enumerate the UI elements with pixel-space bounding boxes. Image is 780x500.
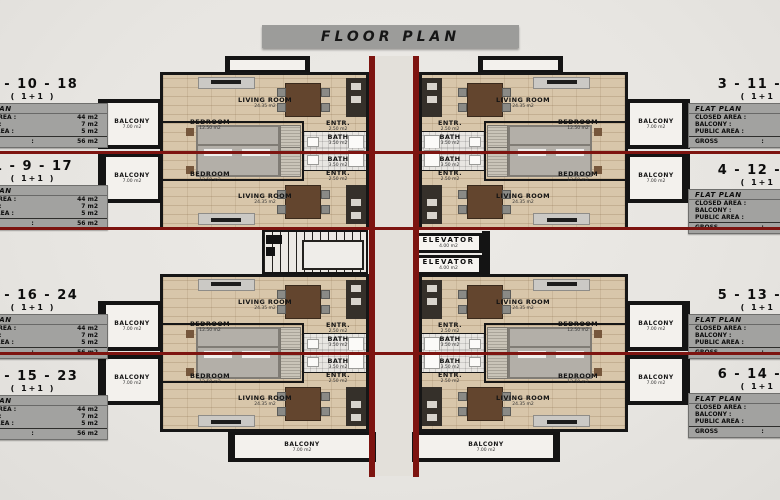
balcony-box: BALCONY 7.00 m2 bbox=[626, 301, 690, 351]
balcony-box: BALCONY 7.00 m2 bbox=[412, 432, 560, 462]
bath-label: BATH 3.50 m2 bbox=[311, 134, 365, 146]
kitchen-counter bbox=[346, 185, 366, 224]
flat-area-table: FLAT PLAN CLOSED AREA :44 m2 BALCONY :7 … bbox=[688, 103, 780, 148]
tv-unit bbox=[198, 213, 255, 225]
kitchen-counter bbox=[422, 280, 442, 319]
bath-label: BATH 3.50 m2 bbox=[423, 134, 477, 146]
tv-unit bbox=[198, 415, 255, 427]
tv-unit bbox=[198, 77, 255, 89]
tv-icon bbox=[211, 80, 241, 84]
flat-type: ( 1+1 ) bbox=[688, 92, 780, 101]
elevator-area: 4.00 m2 bbox=[439, 266, 458, 271]
flat-table-header: FLAT PLAN bbox=[689, 104, 780, 114]
apartment-flat: LIVING ROOM 24.35 m2 BEDROOM 12.50 m2 EN… bbox=[160, 353, 369, 432]
flat-numbers: 4 - 12 - 20 bbox=[688, 164, 780, 178]
staircase bbox=[262, 230, 368, 274]
tv-icon bbox=[211, 282, 241, 286]
section-line-horizontal-1 bbox=[0, 151, 780, 154]
apartment-flat: LIVING ROOM 24.35 m2 BEDROOM 12.50 m2 EN… bbox=[419, 72, 628, 151]
flat-type: ( 1+1 ) bbox=[0, 303, 108, 312]
flat-numbers: 6 - 14 - 22 bbox=[688, 368, 780, 382]
flat-table-header: FLAT PLAN bbox=[0, 104, 107, 114]
flat-area-table: FLAT PLAN CLOSED AREA :44 m2 BALCONY :7 … bbox=[0, 395, 108, 440]
kitchen-counter bbox=[422, 185, 442, 224]
elevator-wall bbox=[482, 231, 490, 277]
living-room-label: LIVING ROOM 24.35 m2 bbox=[223, 193, 307, 205]
flat-type: ( 1+1 ) bbox=[688, 382, 780, 391]
flat-table-header: FLAT PLAN bbox=[0, 186, 107, 196]
bedroom-label: BEDROOM 12.50 m2 bbox=[169, 119, 251, 131]
entrance-label: ENTR. 2.50 m2 bbox=[423, 322, 477, 334]
apartment-flat: LIVING ROOM 24.35 m2 BEDROOM 12.50 m2 EN… bbox=[160, 274, 369, 353]
flat-numbers: 3 - 11 - 19 bbox=[688, 78, 780, 92]
kitchen-counter bbox=[422, 387, 442, 426]
tv-icon bbox=[547, 80, 577, 84]
flat-numbers: 2 - 10 - 18 bbox=[0, 78, 108, 92]
flat-area-table: FLAT PLAN CLOSED AREA :44 m2 BALCONY :7 … bbox=[0, 103, 108, 148]
bedroom-label: BEDROOM 12.50 m2 bbox=[537, 321, 619, 333]
entrance-label: ENTR. 2.50 m2 bbox=[311, 120, 365, 132]
bedroom-label: BEDROOM 12.50 m2 bbox=[169, 171, 251, 183]
flat-table-header: FLAT PLAN bbox=[689, 190, 780, 200]
balcony-box bbox=[478, 56, 563, 72]
interior-wall bbox=[484, 121, 486, 151]
flat-info-label: 8 - 16 - 24 ( 1+1 ) FLAT PLAN CLOSED ARE… bbox=[0, 289, 108, 359]
apartment-flat: LIVING ROOM 24.35 m2 BEDROOM 12.50 m2 EN… bbox=[419, 353, 628, 432]
balcony-box: BALCONY 7.00 m2 bbox=[228, 432, 376, 462]
living-room-label: LIVING ROOM 24.35 m2 bbox=[223, 299, 307, 311]
flat-numbers: 5 - 13 - 21 bbox=[688, 289, 780, 303]
flat-area-table: FLAT PLAN CLOSED AREA :44 m2 BALCONY :7 … bbox=[0, 185, 108, 230]
balcony-box bbox=[225, 56, 310, 72]
kitchen-counter bbox=[422, 78, 442, 117]
bedroom-label: BEDROOM 12.50 m2 bbox=[169, 321, 251, 333]
flat-type: ( 1+1 ) bbox=[688, 303, 780, 312]
bath-label: BATH 3.50 m2 bbox=[311, 358, 365, 370]
flat-table-header: FLAT PLAN bbox=[689, 315, 780, 325]
flat-info-label: 3 - 11 - 19 ( 1+1 ) FLAT PLAN CLOSED ARE… bbox=[688, 78, 780, 148]
apartment-flat: LIVING ROOM 24.35 m2 BEDROOM 12.50 m2 EN… bbox=[160, 151, 369, 230]
entrance-label: ENTR. 2.50 m2 bbox=[311, 372, 365, 384]
flat-info-label: 7 - 15 - 23 ( 1+1 ) FLAT PLAN CLOSED ARE… bbox=[0, 370, 108, 440]
living-room-label: LIVING ROOM 24.35 m2 bbox=[223, 395, 307, 407]
tv-icon bbox=[547, 420, 577, 424]
floor-plan-canvas: FLOOR PLAN ELEVATOR 4.00 m2 ELEVATOR 4.0… bbox=[0, 0, 780, 500]
entrance-label: ENTR. 2.50 m2 bbox=[423, 170, 477, 182]
utility-shaft bbox=[266, 235, 282, 244]
flat-type: ( 1+1 ) bbox=[0, 92, 108, 101]
bedroom-label: BEDROOM 12.50 m2 bbox=[537, 373, 619, 385]
flat-numbers: 7 - 15 - 23 bbox=[0, 370, 108, 384]
tv-unit bbox=[533, 213, 590, 225]
utility-shaft bbox=[266, 247, 275, 256]
living-room-label: LIVING ROOM 24.35 m2 bbox=[481, 193, 565, 205]
tv-icon bbox=[211, 420, 241, 424]
bedroom-label: BEDROOM 12.50 m2 bbox=[537, 119, 619, 131]
living-room-label: LIVING ROOM 24.35 m2 bbox=[481, 299, 565, 311]
flat-numbers: 1 - 9 - 17 bbox=[0, 160, 108, 174]
interior-wall bbox=[484, 151, 486, 181]
flat-table-header: FLAT PLAN bbox=[689, 394, 780, 404]
section-line-horizontal-2 bbox=[0, 227, 780, 230]
section-line-vertical-right bbox=[413, 56, 419, 477]
section-line-horizontal-3 bbox=[0, 352, 780, 355]
flat-info-label: 2 - 10 - 18 ( 1+1 ) FLAT PLAN CLOSED ARE… bbox=[0, 78, 108, 148]
elevator-box: ELEVATOR 4.00 m2 bbox=[415, 255, 482, 275]
kitchen-counter bbox=[346, 280, 366, 319]
tv-icon bbox=[547, 218, 577, 222]
entrance-label: ENTR. 2.50 m2 bbox=[311, 322, 365, 334]
living-room-label: LIVING ROOM 24.35 m2 bbox=[481, 395, 565, 407]
bath-label: BATH 3.50 m2 bbox=[311, 336, 365, 348]
elevator-label: ELEVATOR bbox=[423, 237, 475, 244]
tv-unit bbox=[533, 77, 590, 89]
title-bar: FLOOR PLAN bbox=[262, 25, 519, 48]
flat-table-header: FLAT PLAN bbox=[0, 396, 107, 406]
flat-info-label: 5 - 13 - 21 ( 1+1 ) FLAT PLAN CLOSED ARE… bbox=[688, 289, 780, 359]
apartment-flat: LIVING ROOM 24.35 m2 BEDROOM 12.50 m2 EN… bbox=[160, 72, 369, 151]
interior-wall bbox=[484, 353, 486, 383]
bedroom-label: BEDROOM 12.50 m2 bbox=[537, 171, 619, 183]
flat-numbers: 8 - 16 - 24 bbox=[0, 289, 108, 303]
balcony-box: BALCONY 7.00 m2 bbox=[626, 99, 690, 149]
apartment-flat: LIVING ROOM 24.35 m2 BEDROOM 12.50 m2 EN… bbox=[419, 151, 628, 230]
flat-type: ( 1+1 ) bbox=[688, 178, 780, 187]
bath-label: BATH 3.50 m2 bbox=[423, 358, 477, 370]
tv-icon bbox=[211, 218, 241, 222]
balcony-box: BALCONY 7.00 m2 bbox=[626, 153, 690, 203]
entrance-label: ENTR. 2.50 m2 bbox=[311, 170, 365, 182]
entrance-label: ENTR. 2.50 m2 bbox=[423, 120, 477, 132]
flat-info-label: 6 - 14 - 22 ( 1+1 ) FLAT PLAN CLOSED ARE… bbox=[688, 368, 780, 438]
flat-area-table: FLAT PLAN CLOSED AREA :44 m2 BALCONY :7 … bbox=[688, 393, 780, 438]
tv-unit bbox=[198, 279, 255, 291]
flat-info-label: 4 - 12 - 20 ( 1+1 ) FLAT PLAN CLOSED ARE… bbox=[688, 164, 780, 234]
bedroom-label: BEDROOM 12.50 m2 bbox=[169, 373, 251, 385]
kitchen-counter bbox=[346, 387, 366, 426]
interior-wall bbox=[484, 323, 486, 353]
tv-unit bbox=[533, 415, 590, 427]
apartment-flat: LIVING ROOM 24.35 m2 BEDROOM 12.50 m2 EN… bbox=[419, 274, 628, 353]
corridor-floor bbox=[375, 56, 413, 476]
kitchen-counter bbox=[346, 78, 366, 117]
bath-label: BATH 3.50 m2 bbox=[311, 156, 365, 168]
stair-landing bbox=[302, 240, 364, 270]
elevator-label: ELEVATOR bbox=[423, 259, 475, 266]
bath-label: BATH 3.50 m2 bbox=[423, 336, 477, 348]
page-title: FLOOR PLAN bbox=[321, 29, 460, 45]
tv-unit bbox=[533, 279, 590, 291]
flat-info-label: 1 - 9 - 17 ( 1+1 ) FLAT PLAN CLOSED AREA… bbox=[0, 160, 108, 230]
balcony-box: BALCONY 7.00 m2 bbox=[626, 355, 690, 405]
flat-type: ( 1+1 ) bbox=[0, 174, 108, 183]
bath-label: BATH 3.50 m2 bbox=[423, 156, 477, 168]
living-room-label: LIVING ROOM 24.35 m2 bbox=[223, 97, 307, 109]
tv-icon bbox=[547, 282, 577, 286]
elevator-box: ELEVATOR 4.00 m2 bbox=[415, 233, 482, 253]
flat-table-header: FLAT PLAN bbox=[0, 315, 107, 325]
elevator-area: 4.00 m2 bbox=[439, 244, 458, 249]
living-room-label: LIVING ROOM 24.35 m2 bbox=[481, 97, 565, 109]
entrance-label: ENTR. 2.50 m2 bbox=[423, 372, 477, 384]
section-line-vertical-left bbox=[369, 56, 375, 477]
flat-type: ( 1+1 ) bbox=[0, 384, 108, 393]
